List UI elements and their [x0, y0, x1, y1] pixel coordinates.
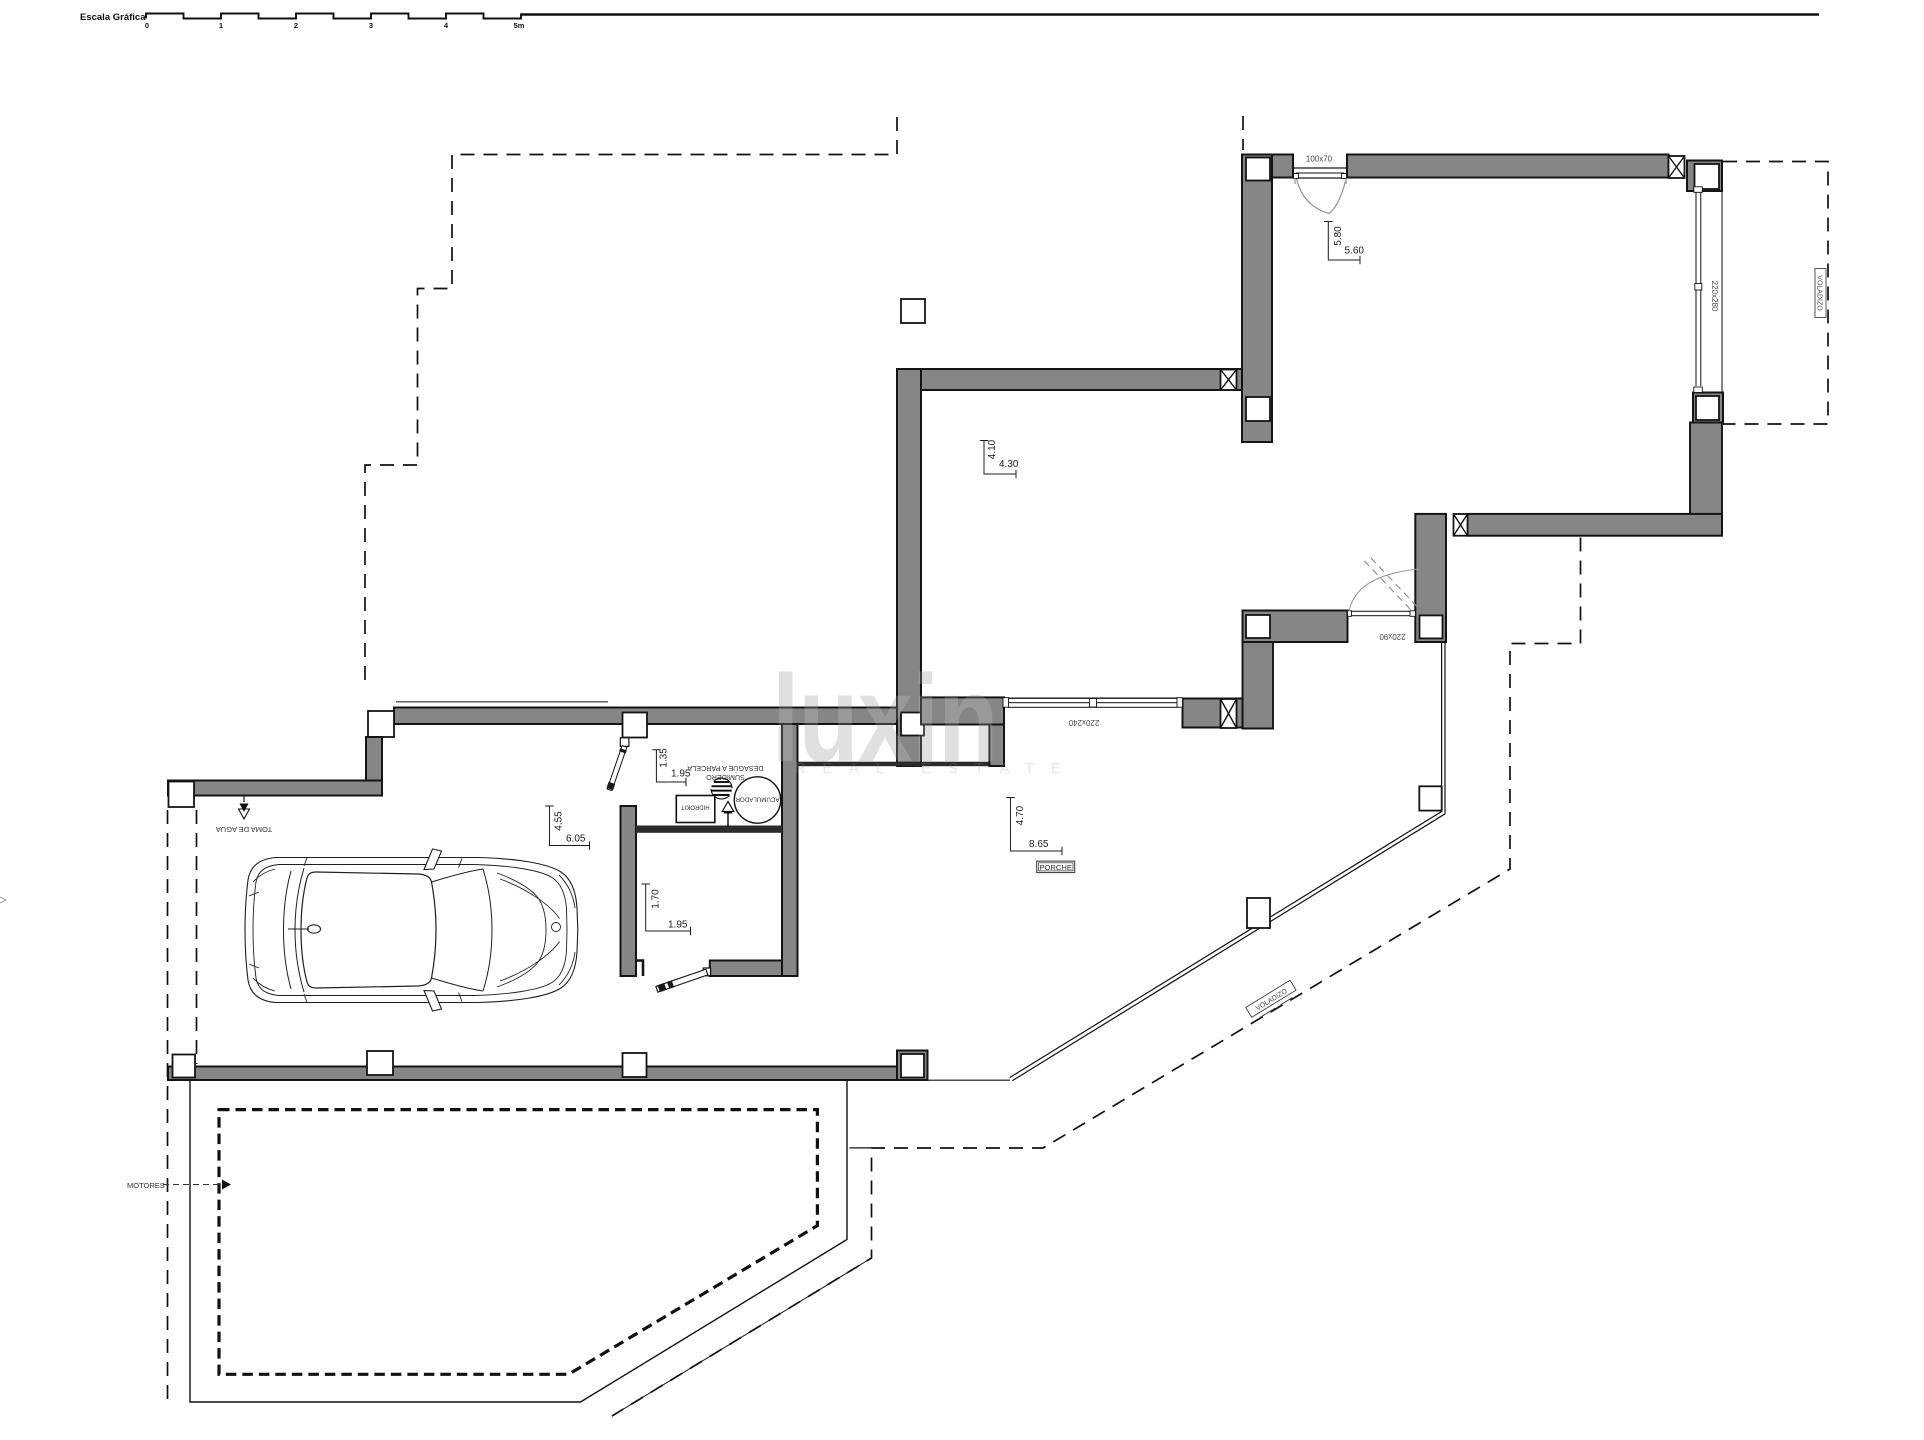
svg-text:PORCHE: PORCHE — [1039, 863, 1072, 872]
svg-text:DESAGÜE A PARCELA: DESAGÜE A PARCELA — [687, 764, 763, 773]
svg-text:Escala Gráfica: Escala Gráfica — [80, 12, 146, 23]
svg-text:3: 3 — [369, 21, 373, 30]
svg-text:4.70: 4.70 — [1015, 805, 1026, 825]
svg-text:REAL ESTATE: REAL ESTATE — [795, 761, 1078, 777]
svg-text:4.55: 4.55 — [554, 811, 565, 831]
svg-text:6.05: 6.05 — [566, 834, 586, 845]
svg-text:1.95: 1.95 — [668, 920, 688, 931]
svg-text:8.65: 8.65 — [1029, 839, 1049, 850]
svg-text:1.70: 1.70 — [651, 889, 662, 909]
svg-text:4.30: 4.30 — [999, 459, 1019, 470]
svg-text:HIDROKIT: HIDROKIT — [681, 804, 710, 810]
svg-text:220x90: 220x90 — [1379, 632, 1406, 641]
svg-text:1: 1 — [219, 21, 223, 30]
svg-text:TOMA DE AGUA: TOMA DE AGUA — [216, 825, 273, 834]
svg-text:100x70: 100x70 — [1306, 155, 1333, 164]
svg-text:1.35: 1.35 — [659, 748, 670, 768]
svg-text:SUMIDERO: SUMIDERO — [706, 773, 745, 782]
svg-text:5.80: 5.80 — [1333, 226, 1344, 246]
svg-text:220x240: 220x240 — [1068, 718, 1099, 727]
svg-text:5m: 5m — [514, 21, 525, 30]
svg-text:5.60: 5.60 — [1345, 246, 1365, 257]
svg-text:2: 2 — [294, 21, 298, 30]
svg-text:220x280: 220x280 — [1710, 281, 1719, 312]
svg-text:VOLADIZO: VOLADIZO — [1816, 275, 1823, 311]
svg-text:4.10: 4.10 — [987, 439, 998, 459]
svg-text:MOTORES: MOTORES — [127, 1181, 165, 1190]
svg-text:0: 0 — [145, 21, 149, 30]
svg-text:ACUMULADOR: ACUMULADOR — [735, 796, 780, 803]
